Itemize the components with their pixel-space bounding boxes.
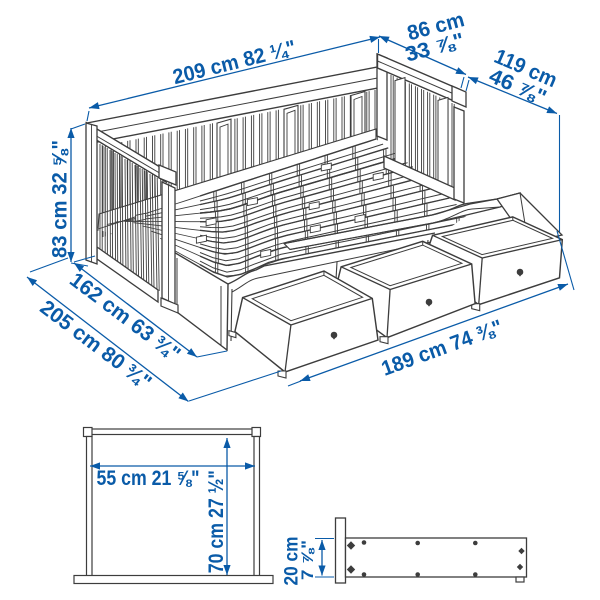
svg-text:83 cm 32 ⅝": 83 cm 32 ⅝"	[49, 140, 72, 258]
svg-text:7 ⅞": 7 ⅞"	[298, 540, 317, 580]
svg-text:70 cm 27 ½": 70 cm 27 ½"	[205, 470, 228, 573]
svg-text:55 cm 21 ⅝": 55 cm 21 ⅝"	[97, 467, 200, 490]
